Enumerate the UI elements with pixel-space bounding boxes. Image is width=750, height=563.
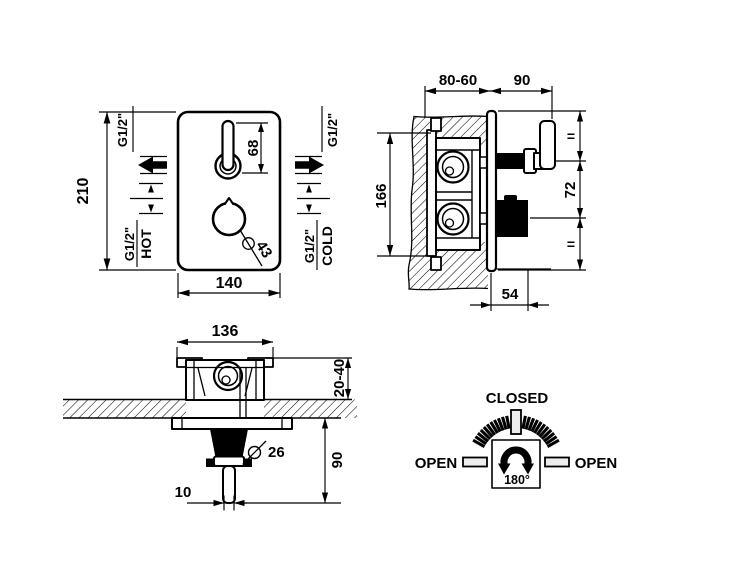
dim-projection-value: 90	[514, 72, 531, 89]
rough-in-box-plan	[177, 358, 273, 418]
open-left-label: OPEN	[415, 455, 458, 472]
outlet-right: G1/2"	[295, 106, 340, 174]
lever-bar	[223, 121, 234, 170]
dimension-arrow	[148, 185, 154, 193]
dimension-arrow	[528, 302, 538, 308]
dimension-arrow	[577, 161, 583, 171]
dimension-projection-90-plan: 90	[236, 418, 346, 503]
closed-label: CLOSED	[486, 390, 549, 407]
inlet-hot-size: G1/2"	[122, 227, 137, 261]
inlet-cold-label: COLD	[319, 226, 335, 266]
open-left-position-marker	[463, 458, 487, 467]
dim-lever-value: 68	[245, 140, 262, 157]
dimension-arrow	[306, 205, 312, 213]
dimension-arrow	[481, 302, 491, 308]
wall-section	[63, 400, 357, 419]
top-view: 136	[63, 323, 357, 511]
trim-plate-side	[487, 111, 496, 271]
outlet-right-size: G1/2"	[325, 113, 340, 147]
dimension-arrow	[322, 493, 328, 504]
dimension-box-136: 136	[177, 323, 273, 359]
dimension-arrow	[387, 133, 393, 144]
dimension-arrow	[214, 500, 225, 506]
dimension-arrow	[234, 500, 245, 506]
side-view: 80-60 90 166	[373, 72, 586, 311]
inlet-cold-size: G1/2"	[302, 229, 317, 263]
dim-wall-range-value: 20-40	[331, 359, 348, 397]
dim-projection-plan-value: 90	[329, 452, 346, 469]
rotation-diagram: CLOSED OPEN OPEN	[415, 390, 618, 488]
dimension-arrow	[479, 88, 490, 94]
dimension-arrow	[577, 260, 583, 271]
dimension-arrow	[425, 88, 436, 94]
dimension-arrow	[490, 88, 501, 94]
rotation-angle-label: 180°	[504, 473, 530, 487]
dim-width-value: 140	[216, 275, 243, 292]
dimension-arrow	[577, 208, 583, 218]
inlet-hot: G1/2" HOT	[122, 184, 163, 268]
dim-height-value: 210	[75, 178, 92, 205]
dimension-arrow	[104, 259, 111, 271]
open-right-position-marker	[545, 458, 569, 467]
dim-spacing-value: 72	[562, 182, 579, 199]
temperature-knob-side	[496, 195, 528, 237]
drawing-canvas: 210 140 68	[0, 0, 750, 563]
dim-recess-value: 80-60	[439, 72, 477, 89]
dimension-arrow	[322, 418, 328, 429]
technical-drawing-sheet: 210 140 68	[0, 0, 750, 563]
concealed-valve-body	[427, 118, 488, 270]
outlet-left-size: G1/2"	[115, 113, 130, 147]
dimension-arrow	[177, 339, 188, 345]
flow-arrow-right-icon	[295, 157, 324, 174]
dimension-arrow	[387, 245, 393, 256]
dimension-wall-20-40: 20-40	[266, 358, 352, 399]
closed-position-marker	[511, 410, 521, 434]
dimension-arrow	[104, 112, 111, 124]
flow-arrow-left-icon	[138, 157, 167, 174]
dimension-arrow	[178, 290, 190, 297]
inlet-hot-label: HOT	[138, 229, 154, 259]
lever-grip	[540, 121, 555, 169]
dimension-arrow	[541, 88, 552, 94]
dimension-arrow	[262, 339, 273, 345]
dimension-projection-90: 90	[490, 72, 552, 119]
dimension-width-140: 140	[178, 273, 280, 298]
equal-spacing-top: =	[567, 128, 575, 144]
open-right-label: OPEN	[575, 455, 618, 472]
dimension-arrow	[577, 111, 583, 122]
dimension-arrow	[577, 151, 583, 161]
knob-profile	[206, 429, 252, 503]
dimension-lever-width-10: 10	[175, 484, 247, 511]
dimension-arrow	[148, 205, 154, 213]
lever-stem	[496, 153, 525, 169]
front-view: 210 140 68	[75, 106, 340, 298]
dim-box-width-value: 136	[212, 323, 239, 340]
dim-lever-width-value: 10	[175, 484, 192, 501]
dimension-arrow	[577, 218, 583, 228]
outlet-left: G1/2"	[115, 106, 167, 174]
dimension-recess-80-60: 80-60	[425, 72, 490, 118]
knob-notch-side	[504, 195, 517, 201]
dimension-arrow	[269, 290, 281, 297]
lever-handle-side	[496, 121, 555, 173]
lever-profile	[223, 466, 235, 503]
dim-stem-diameter-value: 26	[268, 444, 285, 461]
dim-body-value: 166	[373, 183, 390, 208]
escutcheon-flange	[172, 418, 292, 429]
equal-spacing-bottom: =	[567, 236, 575, 252]
dimension-arrow	[306, 185, 312, 193]
dim-knob-depth-value: 54	[502, 286, 519, 303]
inlet-cold: G1/2" COLD	[297, 184, 335, 271]
